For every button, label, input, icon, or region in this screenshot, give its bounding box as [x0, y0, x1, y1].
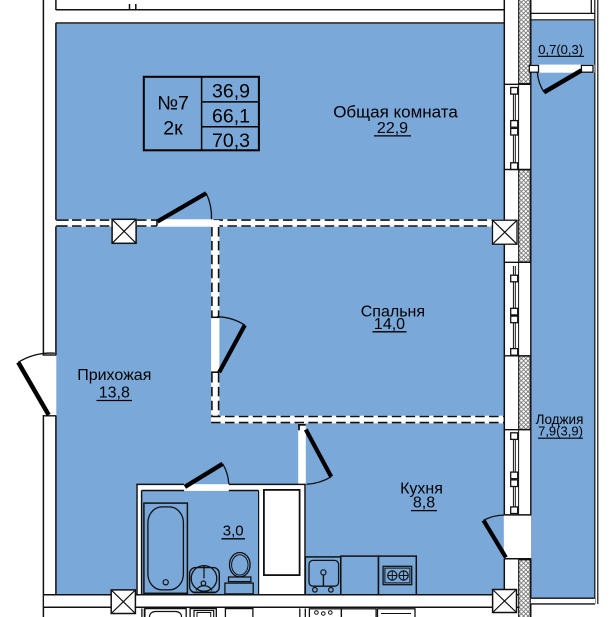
svg-text:Общая комната: Общая комната — [333, 103, 458, 122]
svg-text:0,7(0,3): 0,7(0,3) — [538, 42, 583, 57]
svg-text:22,9: 22,9 — [377, 120, 408, 137]
svg-text:7,9(3,9): 7,9(3,9) — [538, 424, 583, 439]
svg-text:8,8: 8,8 — [413, 495, 435, 512]
svg-text:3,0: 3,0 — [223, 523, 244, 540]
svg-text:36,9: 36,9 — [212, 81, 250, 103]
svg-text:70,3: 70,3 — [212, 130, 250, 152]
svg-text:66,1: 66,1 — [212, 105, 250, 127]
svg-text:14,0: 14,0 — [374, 316, 405, 333]
svg-text:Прихожая: Прихожая — [77, 367, 151, 384]
svg-text:13,8: 13,8 — [99, 385, 130, 402]
svg-text:№7: №7 — [157, 93, 189, 115]
svg-text:2к: 2к — [163, 118, 183, 140]
